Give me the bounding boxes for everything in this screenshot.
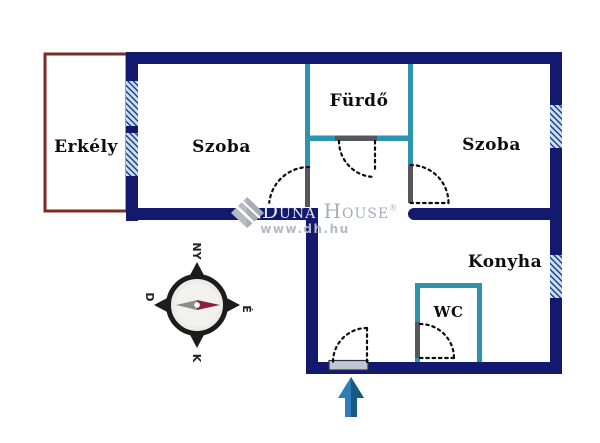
entrance-arrow-icon (338, 377, 364, 417)
compass-icon (154, 262, 240, 348)
watermark-reg-mark: ® (389, 203, 398, 212)
compass-label-west: NY (189, 240, 203, 262)
watermark-brand-second: House (324, 199, 390, 223)
room-label-wc: WC (420, 303, 477, 321)
compass-label-east: K (189, 347, 203, 369)
compass-label-north: É (239, 298, 253, 320)
door-swing-arcs (269, 141, 454, 362)
room-label-balcony: Erkély (44, 137, 128, 157)
watermark-brand: Duna House® (262, 199, 398, 223)
room-label-bathroom: Fürdő (310, 91, 408, 111)
compass-label-south: D (142, 286, 156, 308)
window-balcony-upper (126, 81, 138, 126)
balcony-outline (45, 54, 127, 211)
watermark-brand-first: Duna (262, 199, 316, 223)
room-label-room-right: Szoba (423, 135, 560, 155)
floor-plan: Erkély Szoba Fürdő Szoba Konyha WC NY D … (0, 0, 600, 443)
room-label-room-left: Szoba (138, 137, 305, 157)
door-jambs (305, 136, 420, 359)
room-label-kitchen: Konyha (438, 252, 572, 272)
watermark-url: www.dh.hu (250, 222, 360, 236)
entrance-sill (329, 361, 368, 371)
